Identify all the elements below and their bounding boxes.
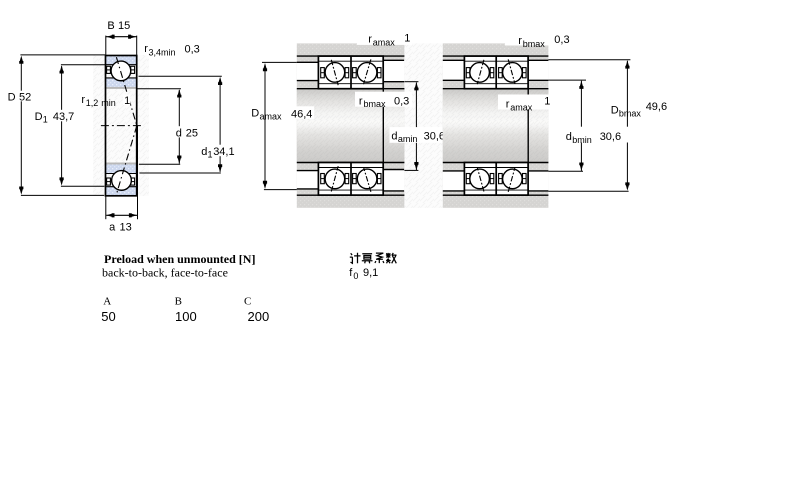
svg-text:B: B [107, 20, 114, 32]
svg-text:1: 1 [124, 95, 130, 107]
svg-text:d: d [176, 128, 182, 140]
svg-text:13: 13 [120, 221, 132, 233]
svg-text:D: D [251, 108, 259, 120]
svg-text:50: 50 [101, 309, 115, 324]
svg-text:d: d [566, 131, 572, 143]
svg-text:200: 200 [248, 309, 270, 324]
svg-text:A: A [103, 296, 111, 308]
svg-text:r: r [81, 94, 85, 106]
svg-text:amax: amax [260, 112, 283, 122]
svg-text:43,7: 43,7 [53, 111, 74, 123]
svg-text:1,2: 1,2 [86, 98, 99, 108]
svg-text:30,6: 30,6 [424, 130, 445, 142]
svg-text:d: d [201, 146, 207, 158]
svg-text:46,4: 46,4 [291, 108, 312, 120]
svg-text:1: 1 [544, 95, 550, 107]
svg-text:3,4min: 3,4min [149, 47, 176, 57]
svg-text:d: d [391, 130, 397, 142]
svg-text:r: r [368, 34, 372, 46]
svg-text:bmax: bmax [619, 108, 642, 118]
svg-text:B: B [175, 296, 182, 308]
svg-text:bmax: bmax [523, 39, 546, 49]
svg-text:30,6: 30,6 [600, 131, 621, 143]
svg-text:D: D [8, 91, 16, 103]
svg-text:bmax: bmax [364, 99, 387, 109]
svg-text:0,3: 0,3 [185, 43, 200, 55]
svg-text:back-to-back, face-to-face: back-to-back, face-to-face [102, 266, 228, 280]
svg-text:bmin: bmin [572, 135, 592, 145]
svg-text:1: 1 [404, 33, 410, 45]
svg-text:34,1: 34,1 [213, 146, 234, 158]
svg-text:15: 15 [118, 20, 130, 32]
svg-text:52: 52 [19, 91, 31, 103]
svg-text:25: 25 [186, 128, 198, 140]
svg-text:amax: amax [373, 37, 396, 47]
svg-text:49,6: 49,6 [646, 101, 667, 113]
svg-text:Preload when unmounted [N]: Preload when unmounted [N] [104, 252, 255, 266]
svg-text:amax: amax [510, 102, 533, 112]
svg-text:min: min [101, 98, 116, 108]
svg-text:0,3: 0,3 [394, 95, 409, 107]
svg-text:amin: amin [398, 134, 418, 144]
svg-text:a: a [109, 221, 116, 233]
svg-text:r: r [518, 35, 522, 47]
svg-text:C: C [244, 296, 251, 308]
svg-text:D: D [35, 111, 43, 123]
svg-text:1: 1 [43, 115, 48, 125]
svg-text:D: D [611, 105, 619, 117]
svg-text:r: r [506, 99, 510, 111]
svg-text:9,1: 9,1 [363, 267, 378, 279]
svg-text:1: 1 [208, 150, 213, 160]
svg-text:100: 100 [175, 309, 197, 324]
svg-text:0,3: 0,3 [554, 34, 569, 46]
svg-text:r: r [359, 95, 363, 107]
svg-text:0: 0 [353, 271, 358, 281]
